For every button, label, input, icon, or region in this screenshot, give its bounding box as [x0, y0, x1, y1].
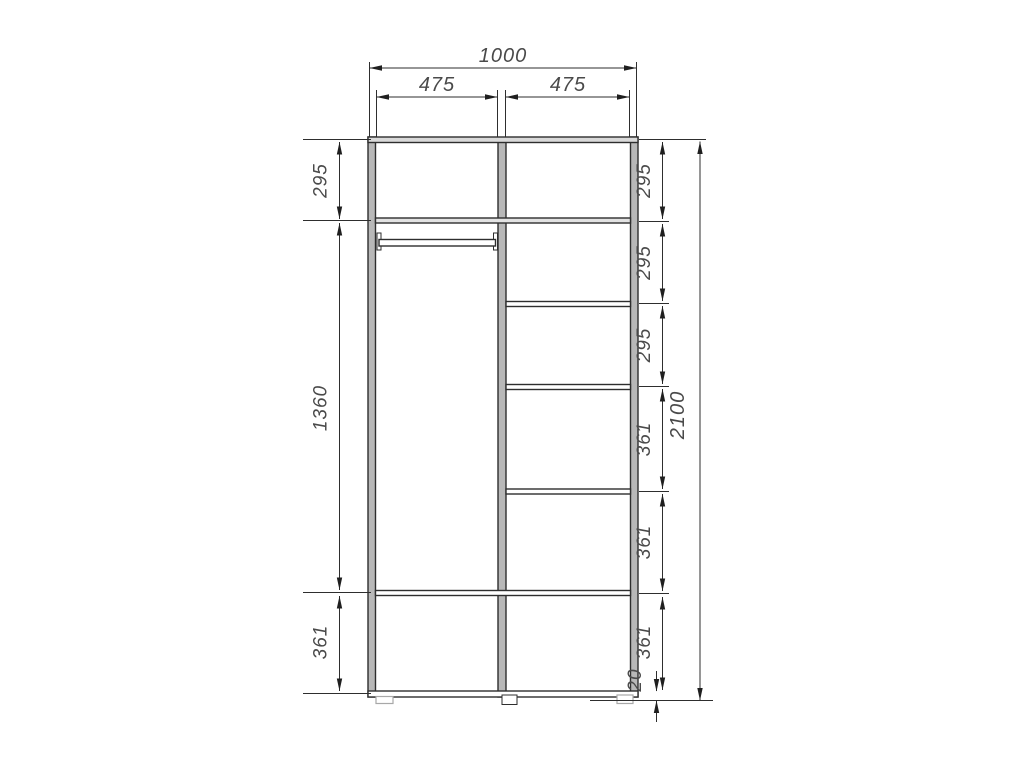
dim-label-right-section-width: 475	[550, 74, 586, 96]
dim-label-left-section-width: 475	[419, 74, 455, 96]
foot-right	[617, 695, 633, 704]
right-shelf-3	[506, 489, 631, 494]
drawing-canvas: 1000 475 475 295 1360 361 295	[0, 0, 1024, 768]
dim-overall-height: 2100	[667, 142, 703, 701]
dim-left-section-width: 475	[377, 74, 498, 100]
foot-center	[502, 695, 517, 705]
foot-left	[376, 697, 393, 704]
right-shelf-1	[506, 302, 631, 307]
dim-label-right-5: 361	[634, 525, 655, 560]
dim-label-left-top: 295	[311, 163, 332, 199]
hanging-rail	[377, 233, 498, 250]
extension-lines	[303, 62, 713, 701]
dim-label-overall-height: 2100	[667, 391, 689, 441]
dim-overall-width: 1000	[370, 45, 637, 71]
dim-label-left-bottom: 361	[311, 625, 332, 660]
top-shelf	[376, 218, 631, 223]
dim-label-right-3: 295	[634, 328, 655, 364]
dim-label-right-4: 361	[634, 422, 655, 457]
dim-label-right-6: 361	[634, 625, 655, 660]
dim-label-overall-width: 1000	[479, 45, 528, 67]
right-shelf-2	[506, 385, 631, 390]
cabinet-body	[368, 137, 638, 705]
dim-left-chain: 295 1360 361	[311, 142, 343, 691]
lower-full-shelf	[376, 591, 631, 596]
dim-label-left-middle: 1360	[311, 385, 332, 431]
dim-label-right-2: 295	[634, 245, 655, 281]
dim-label-plinth-gap: 20	[625, 668, 646, 692]
top-panel	[368, 137, 638, 143]
dim-right-section-width: 475	[506, 74, 630, 100]
dim-label-right-1: 295	[634, 163, 655, 199]
right-side-panel	[631, 137, 639, 697]
wardrobe-dimension-drawing: 1000 475 475 295 1360 361 295	[0, 0, 1024, 768]
rail-bar	[379, 240, 496, 247]
